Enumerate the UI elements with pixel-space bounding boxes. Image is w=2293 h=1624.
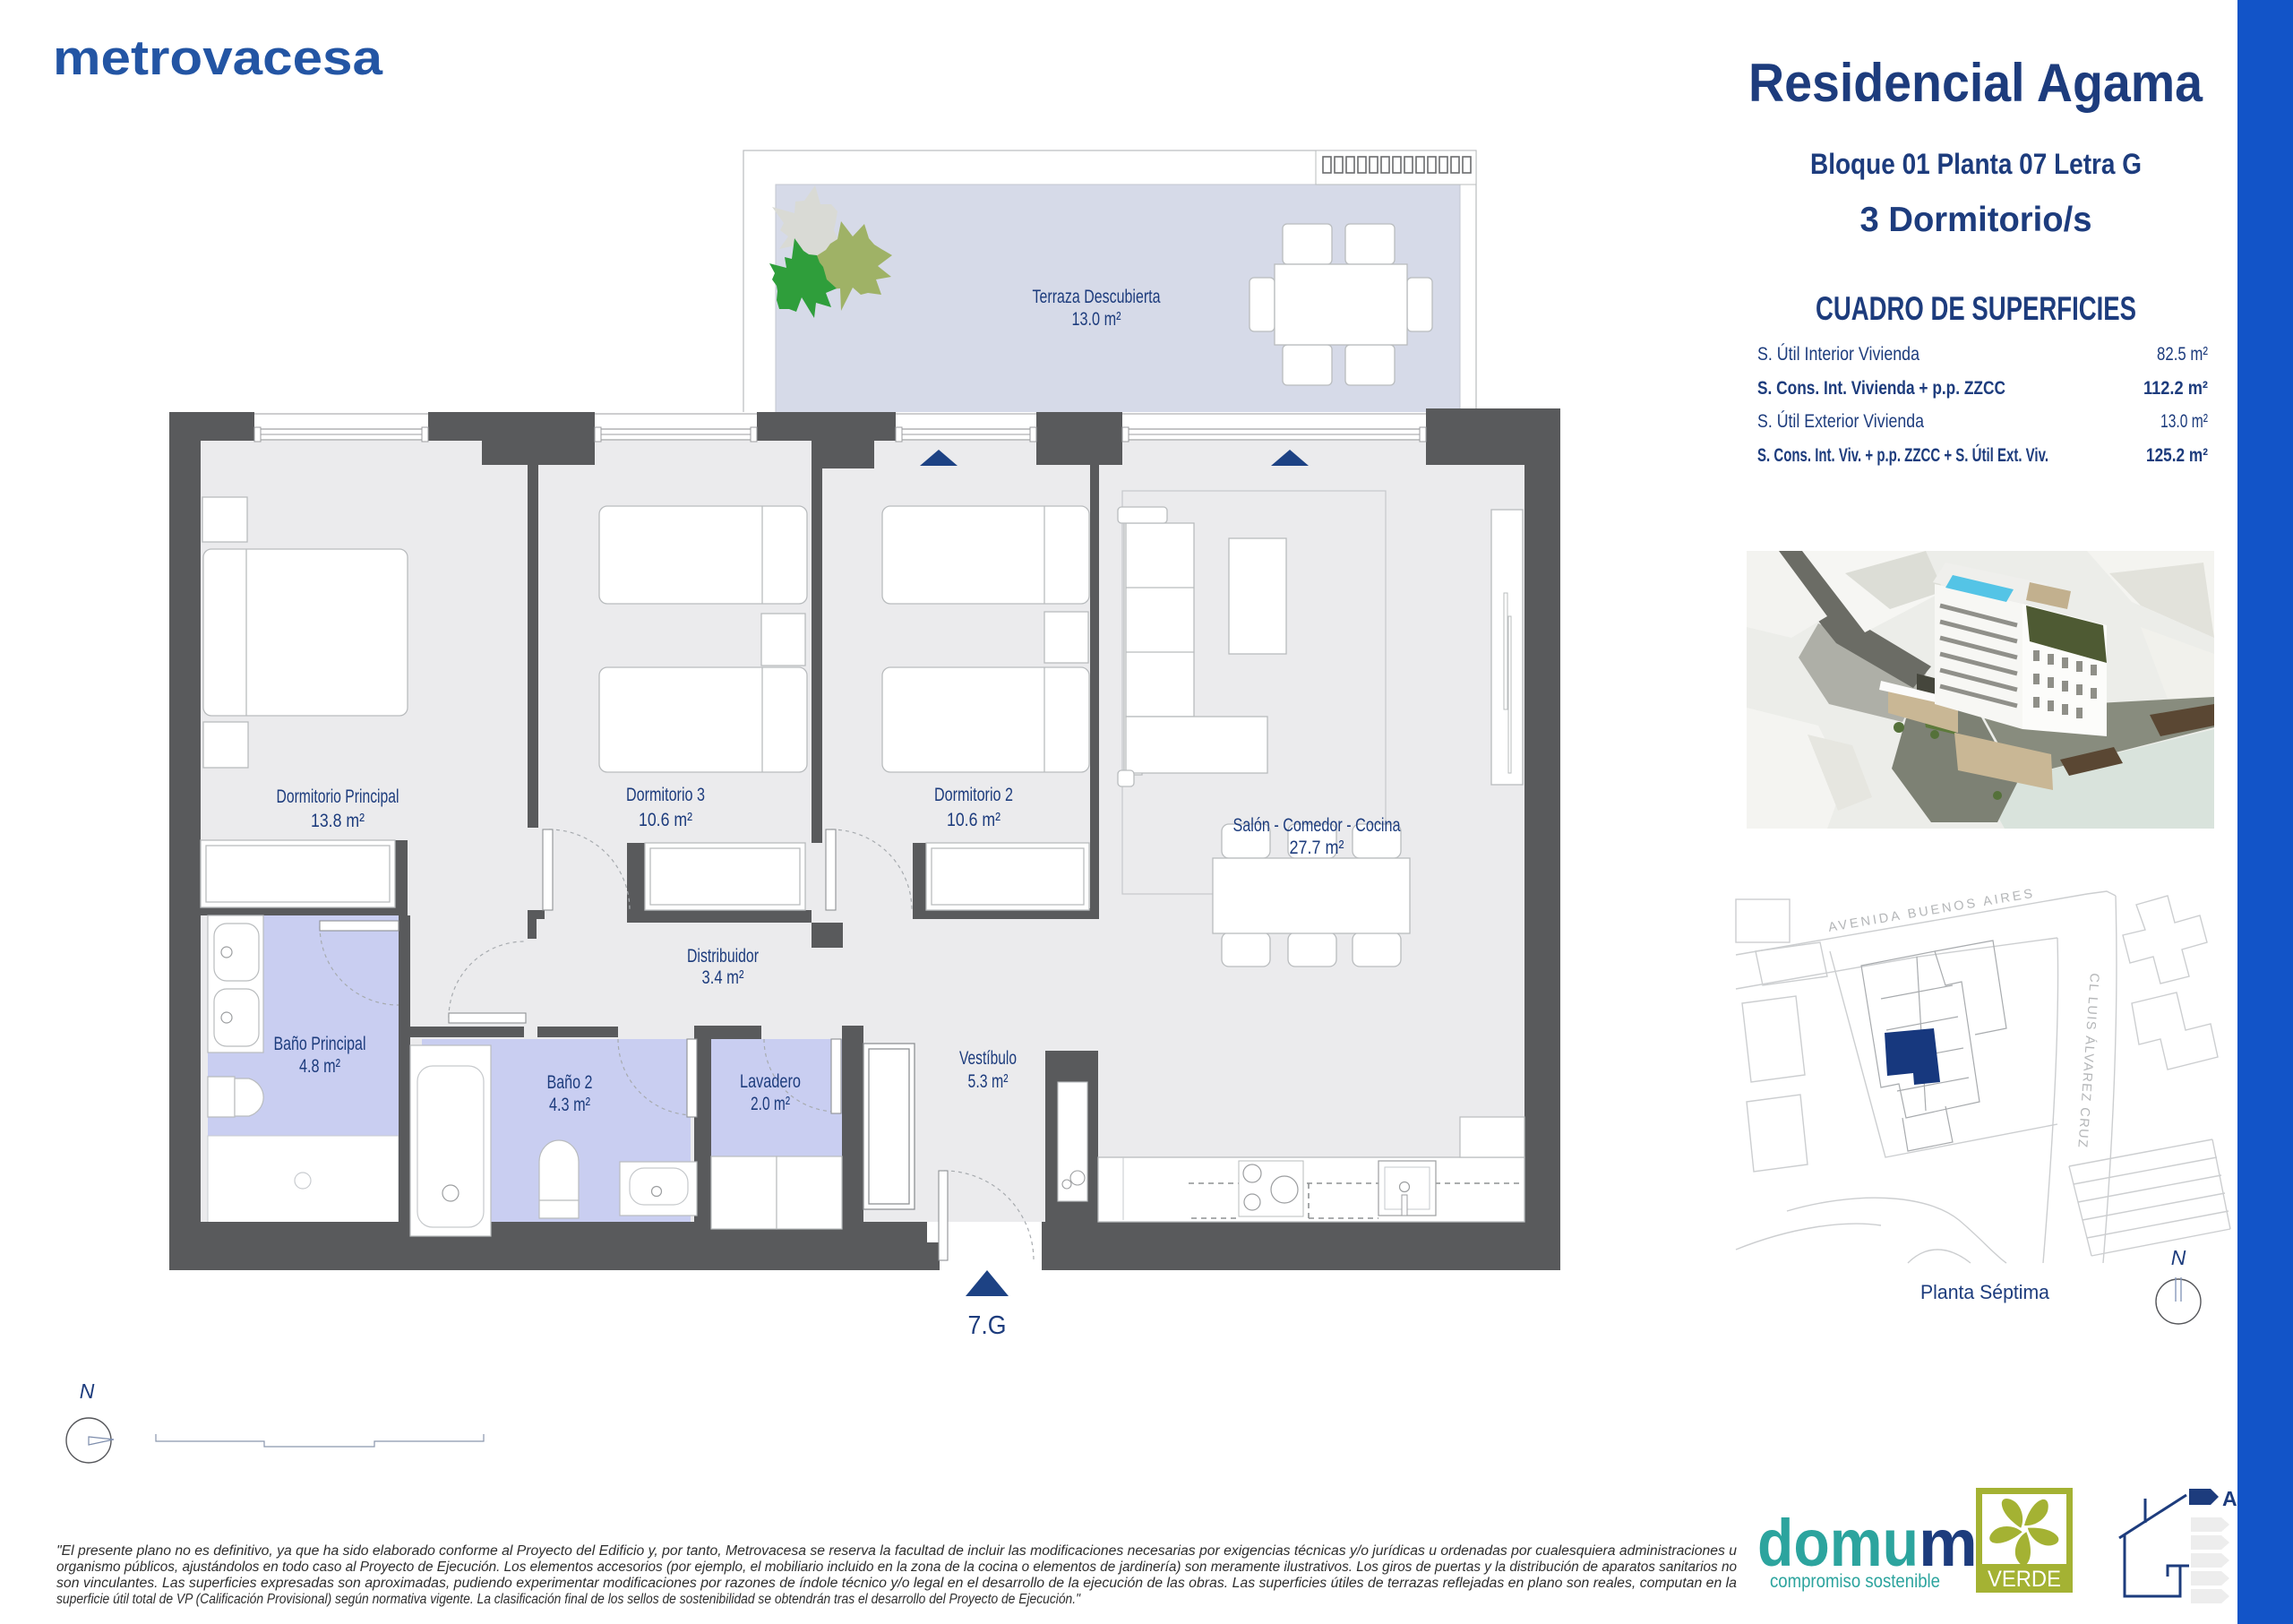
- svg-text:A: A: [2222, 1487, 2237, 1510]
- svg-text:82.5 m²: 82.5 m²: [2157, 344, 2208, 365]
- svg-text:organismo públicos, ajustándol: organismo públicos, ajustándolos en todo…: [56, 1560, 1737, 1575]
- svg-text:Dormitorio Principal: Dormitorio Principal: [277, 786, 399, 807]
- svg-text:13.0 m²: 13.0 m²: [1072, 309, 1121, 330]
- svg-text:"El presente plano no es defin: "El presente plano no es definitivo, ya …: [56, 1543, 1737, 1559]
- svg-text:2.0 m²: 2.0 m²: [751, 1094, 790, 1114]
- svg-text:S. Útil Exterior Vivienda: S. Útil Exterior Vivienda: [1757, 411, 1924, 432]
- svg-text:Bloque 01 Planta 07 Letra G: Bloque 01 Planta 07 Letra G: [1810, 148, 2142, 180]
- svg-text:son vinculantes. Las superfici: son vinculantes. Las superficies expresa…: [56, 1576, 1737, 1591]
- svg-text:13.0 m²: 13.0 m²: [2160, 411, 2208, 432]
- svg-text:Lavadero: Lavadero: [740, 1071, 801, 1092]
- svg-text:N: N: [80, 1379, 95, 1403]
- svg-text:7.G: 7.G: [968, 1311, 1007, 1340]
- svg-text:S. Cons. Int. Vivienda + p.p.: S. Cons. Int. Vivienda + p.p. ZZCC: [1757, 378, 2005, 399]
- svg-text:CUADRO DE SUPERFICIES: CUADRO DE SUPERFICIES: [1816, 290, 2136, 327]
- svg-text:VERDE: VERDE: [1988, 1567, 2061, 1592]
- svg-text:3.4 m²: 3.4 m²: [702, 967, 744, 988]
- svg-text:m: m: [1919, 1506, 1978, 1580]
- svg-text:N: N: [2171, 1246, 2186, 1269]
- svg-text:Baño Principal: Baño Principal: [274, 1034, 366, 1054]
- svg-text:Baño 2: Baño 2: [547, 1072, 593, 1093]
- svg-text:4.3 m²: 4.3 m²: [549, 1095, 590, 1115]
- svg-text:5.3 m²: 5.3 m²: [968, 1071, 1009, 1092]
- svg-text:27.7 m²: 27.7 m²: [1290, 838, 1344, 858]
- svg-text:10.6 m²: 10.6 m²: [947, 810, 1001, 830]
- svg-text:Terraza Descubierta: Terraza Descubierta: [1033, 287, 1161, 307]
- svg-text:Distribuidor: Distribuidor: [687, 946, 759, 967]
- svg-text:S. Útil Interior Vivienda: S. Útil Interior Vivienda: [1757, 344, 1919, 365]
- svg-text:Residencial Agama: Residencial Agama: [1748, 53, 2203, 113]
- svg-text:superficie útil total de VP (C: superficie útil total de VP (Calificació…: [56, 1592, 1081, 1607]
- svg-text:Vestíbulo: Vestíbulo: [959, 1048, 1017, 1069]
- svg-text:13.8 m²: 13.8 m²: [311, 811, 365, 831]
- svg-text:S. Cons. Int. Viv. + p.p. ZZCC: S. Cons. Int. Viv. + p.p. ZZCC + S. Útil…: [1757, 444, 2048, 466]
- svg-text:metrovacesa: metrovacesa: [53, 30, 382, 85]
- svg-text:CL LUIS ÁLVAREZ CRUZ: CL LUIS ÁLVAREZ CRUZ: [2074, 973, 2102, 1149]
- svg-text:compromiso sostenible: compromiso sostenible: [1770, 1571, 1940, 1592]
- svg-text:10.6 m²: 10.6 m²: [639, 810, 692, 830]
- svg-text:112.2 m²: 112.2 m²: [2143, 378, 2208, 399]
- svg-text:domu: domu: [1757, 1506, 1919, 1580]
- svg-text:3 Dormitorio/s: 3 Dormitorio/s: [1860, 201, 2092, 239]
- svg-text:4.8 m²: 4.8 m²: [299, 1056, 340, 1077]
- svg-text:125.2 m²: 125.2 m²: [2146, 445, 2208, 466]
- svg-text:Salón - Comedor - Cocina: Salón - Comedor - Cocina: [1233, 815, 1401, 836]
- svg-text:Dormitorio 3: Dormitorio 3: [626, 785, 705, 805]
- svg-text:AVENIDA BUENOS AIRES: AVENIDA BUENOS AIRES: [1827, 887, 2036, 935]
- svg-text:Dormitorio 2: Dormitorio 2: [934, 785, 1013, 805]
- svg-text:Planta Séptima: Planta Séptima: [1920, 1281, 2050, 1303]
